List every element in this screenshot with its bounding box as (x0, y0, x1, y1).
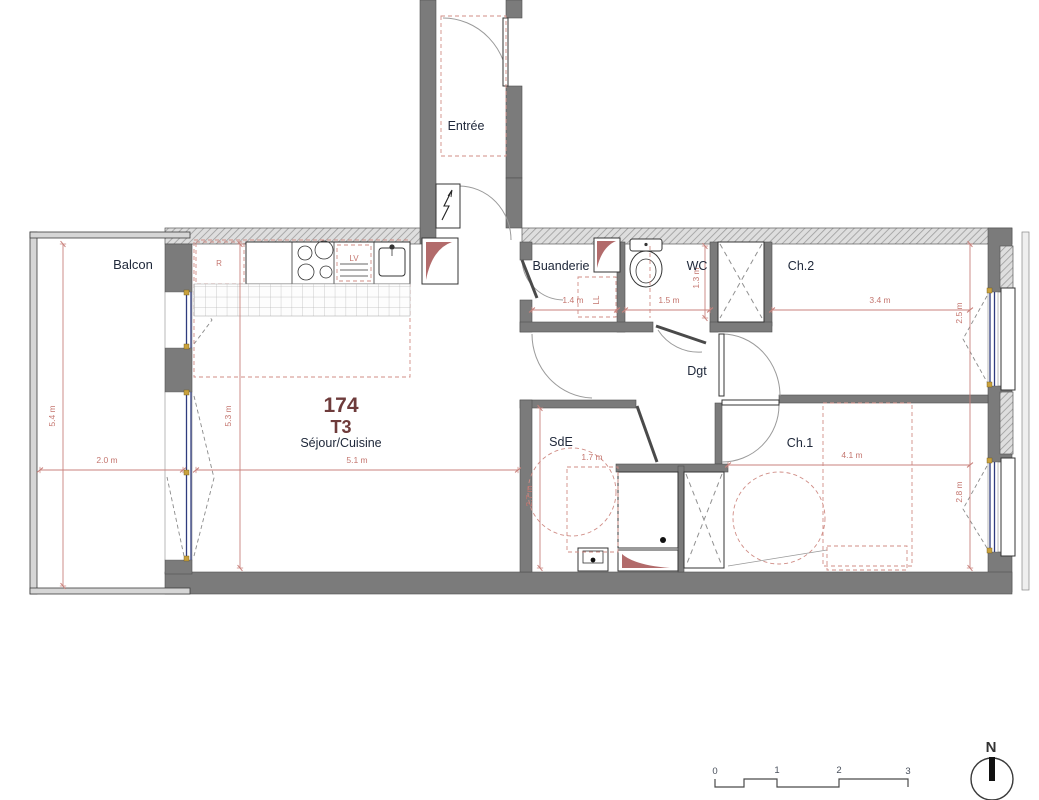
electrical-panel-icon (436, 184, 460, 228)
room-label-entree: Entrée (448, 119, 485, 133)
entree-area-outline (441, 16, 506, 156)
balcony-wall-top (30, 232, 190, 238)
door-arc-ch1 (722, 405, 779, 462)
balcony-wall-left (30, 232, 37, 594)
window-fitting-dot (987, 458, 992, 463)
dim-ch1-w: 4.1 m (841, 450, 862, 460)
sink-icon (379, 244, 405, 276)
ch1-turning-circle (733, 472, 825, 564)
wall-sde-top (520, 400, 636, 408)
shower-icon (618, 472, 678, 571)
wall-closet-ch2 (764, 242, 772, 326)
wall-entree-right-low (506, 178, 522, 228)
door-leaf-sde (637, 406, 657, 462)
washer-label: LL (592, 295, 601, 304)
wall-buanderie-left-top (520, 242, 532, 260)
unit-number: 174 (323, 394, 358, 417)
room-label-ch1: Ch.1 (787, 436, 813, 450)
window-fitting-dot (184, 390, 189, 395)
wall-left-c (165, 560, 192, 574)
window-fitting-dot (987, 548, 992, 553)
room-label-dgt: Dgt (687, 364, 707, 378)
toilet-icon (630, 239, 662, 287)
wall-sde-dgt-bottom (616, 464, 728, 472)
kitchen-fixtures (194, 240, 410, 377)
window-ch1-icon (988, 458, 1015, 556)
dim-sde-h: 2.7 m (524, 485, 534, 506)
window-fitting-dot (184, 290, 189, 295)
closet-ch1-icon (684, 472, 724, 568)
wall-right-hatch-a (1000, 246, 1013, 288)
wall-bottom (165, 572, 1012, 594)
floor-plan-drawing: 5.4 m 2.0 m 5.3 m 5.1 m 1.4 m 1.5 m 1.3 … (0, 0, 1039, 800)
sde-zone-outline (567, 467, 618, 552)
dim-wc-w: 1.5 m (658, 295, 679, 305)
room-label-buanderie: Buanderie (533, 259, 590, 273)
window-ch2-icon (988, 288, 1015, 390)
dim-sejour-h: 5.3 m (223, 405, 233, 426)
door-arc-entree-bottom (459, 186, 511, 240)
dim-balcon-w: 2.0 m (96, 455, 117, 465)
fridge-label: R (216, 259, 222, 268)
adjacent-structure (1022, 232, 1029, 590)
washbasin-icon (578, 548, 608, 571)
wall-below-closet (710, 322, 772, 332)
door-leaf-ch1 (722, 400, 779, 405)
wall-wc-closet (710, 242, 718, 332)
bathroom-fixtures (578, 472, 678, 571)
window-swing-ch1 (963, 466, 987, 548)
scale-bar: 0 1 2 3 (712, 765, 910, 787)
scale-bar-line (715, 779, 908, 787)
window-sejour-large-icon (165, 392, 192, 560)
room-label-sde: SdE (549, 435, 573, 449)
room-label-wc: WC (687, 259, 708, 273)
door-leaf-wc (656, 326, 706, 343)
door-arc-sejour-dgt (532, 334, 592, 398)
dim-sejour-w: 5.1 m (346, 455, 367, 465)
dishwasher-label: LV (349, 254, 359, 263)
wall-dgt-ch1 (715, 403, 722, 464)
scale-tick-1: 1 (774, 765, 779, 776)
scale-tick-0: 0 (712, 766, 717, 777)
window-swing-ch2 (963, 296, 987, 382)
door-leaf-ch2 (719, 334, 724, 396)
north-arrow: N (971, 739, 1013, 800)
north-label: N (986, 739, 997, 756)
room-label-sejour: Séjour/Cuisine (300, 436, 381, 450)
wall-below-buanderie (520, 322, 653, 332)
wall-right-hatch-b (1000, 392, 1013, 454)
window-fitting-dot (184, 556, 189, 561)
north-needle (989, 757, 995, 781)
dim-ch2-h: 2.5 m (954, 302, 964, 323)
door-arc-entree-top (443, 18, 508, 86)
dim-ch2-w: 3.4 m (869, 295, 890, 305)
wall-shower-closet (678, 466, 684, 572)
kitchen-tiled-floor (194, 284, 410, 316)
door-leaf-entree-top (503, 18, 508, 86)
unit-labels: 174 T3 (323, 394, 358, 437)
scale-tick-2: 2 (836, 765, 841, 776)
balcony-wall-bottom (30, 588, 190, 594)
window-swing-sejour-large (194, 396, 214, 556)
unit-type: T3 (330, 417, 351, 437)
window-fitting-dot (184, 344, 189, 349)
ch1-zone-outline (823, 403, 912, 566)
room-label-balcon: Balcon (113, 257, 153, 272)
window-sejour-small-icon (165, 292, 192, 348)
dim-balcon-h: 5.4 m (47, 405, 57, 426)
dim-sde-w: 1.7 m (581, 452, 602, 462)
wall-ch2-ch1 (779, 395, 988, 403)
wall-left-a (165, 244, 192, 292)
wall-entree-left (420, 0, 436, 244)
window-fitting-dot (184, 470, 189, 475)
dim-buanderie-w: 1.4 m (562, 295, 583, 305)
scale-tick-3: 3 (905, 766, 910, 777)
closet-ch2-icon (718, 242, 764, 322)
sde-turning-circle (528, 448, 616, 536)
wall-left-b (165, 348, 192, 392)
wall-entree-right-top (506, 0, 522, 18)
dim-ch1-h: 2.8 m (954, 481, 964, 502)
wall-entree-right-mid (506, 86, 522, 178)
room-label-ch2: Ch.2 (788, 259, 814, 273)
floor-plan-page: 5.4 m 2.0 m 5.3 m 5.1 m 1.4 m 1.5 m 1.3 … (0, 0, 1039, 800)
window-fitting-dot (987, 288, 992, 293)
door-arc-ch2 (722, 334, 780, 396)
window-fitting-dot (987, 382, 992, 387)
